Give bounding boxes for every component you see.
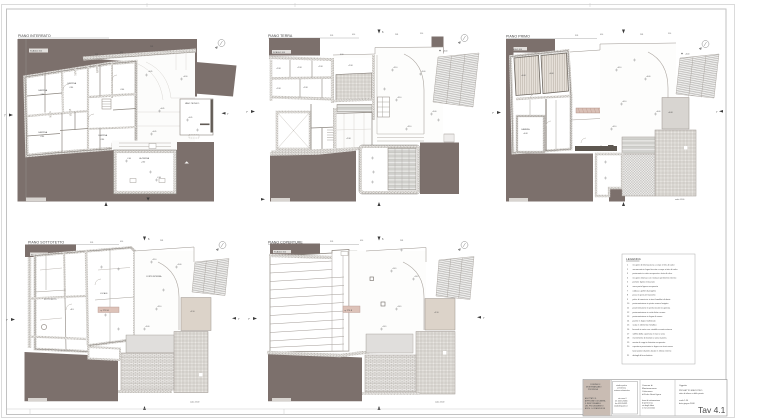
svg-text:scala 1:100: scala 1:100 bbox=[435, 402, 444, 404]
svg-text:dettagli di ferro battuto: dettagli di ferro battuto bbox=[633, 354, 654, 357]
svg-text:scala in elemento metallico: scala in elemento metallico bbox=[633, 324, 658, 327]
svg-text:7: 7 bbox=[227, 112, 229, 116]
svg-text:7': 7' bbox=[6, 318, 8, 322]
svg-text:+2.98: +2.98 bbox=[297, 67, 302, 69]
svg-text:4.10: 4.10 bbox=[120, 52, 123, 54]
svg-text:ARCH. G. FRANCESCHI: ARCH. G. FRANCESCHI bbox=[585, 407, 606, 410]
svg-text:7: 7 bbox=[238, 317, 240, 321]
svg-text:7': 7' bbox=[248, 317, 250, 321]
svg-text:LOCALE: LOCALE bbox=[100, 292, 108, 295]
svg-text:scala 1:100: scala 1:100 bbox=[190, 402, 199, 404]
svg-text:+9.40: +9.40 bbox=[177, 264, 181, 266]
svg-text:Tav 4.1: Tav 4.1 bbox=[698, 405, 726, 415]
svg-text:+6.40: +6.40 bbox=[685, 54, 689, 56]
svg-text:CORTE INTERNA: CORTE INTERNA bbox=[146, 275, 162, 278]
svg-text:+3.40: +3.40 bbox=[432, 111, 436, 113]
svg-text:bussola in vetro con cristallo: bussola in vetro con cristallo curvato e… bbox=[633, 328, 673, 331]
svg-text:+10.9: +10.9 bbox=[414, 276, 418, 278]
svg-text:pavimentazione in legno di rov: pavimentazione in legno di rovere bbox=[633, 315, 664, 318]
svg-text:+0.45: +0.45 bbox=[152, 131, 156, 133]
svg-text:pavimentazione in pietra seren: pavimentazione in pietra serena levigata bbox=[633, 302, 670, 305]
svg-text:+2.98: +2.98 bbox=[346, 138, 351, 140]
svg-text:lavorazione di pietra locale i: lavorazione di pietra locale in rilievo … bbox=[633, 350, 673, 353]
svg-text:+6.08: +6.08 bbox=[521, 75, 526, 77]
svg-text:5.10: 5.10 bbox=[668, 33, 671, 35]
svg-text:+6.10: +6.10 bbox=[617, 67, 621, 69]
svg-text:caldaia a pellet di progetto: caldaia a pellet di progetto bbox=[633, 289, 657, 292]
svg-text:rivestimento di mattoni a vist: rivestimento di mattoni a vista in pietr… bbox=[633, 337, 668, 340]
svg-text:+9.10: +9.10 bbox=[152, 259, 156, 261]
svg-text:SCALA 1:100: SCALA 1:100 bbox=[273, 51, 286, 54]
svg-text:posa in opera di massetto: posa in opera di massetto bbox=[633, 294, 657, 297]
svg-text:PIANO PRIMO: PIANO PRIMO bbox=[506, 34, 530, 38]
svg-text:vano porta ligneo recuperato: vano porta ligneo recuperato bbox=[633, 285, 659, 288]
svg-text:studio@quattro.it: studio@quattro.it bbox=[614, 405, 628, 408]
svg-text:+6.08: +6.08 bbox=[549, 73, 554, 75]
svg-text:+0.45: +0.45 bbox=[148, 71, 152, 73]
svg-text:CANTINA: CANTINA bbox=[98, 134, 108, 137]
svg-text:4.10: 4.10 bbox=[360, 240, 363, 242]
svg-text:Oggetto: Oggetto bbox=[679, 384, 688, 387]
svg-text:7': 7' bbox=[492, 111, 494, 115]
svg-text:7: 7 bbox=[483, 316, 485, 320]
svg-text:+6.08: +6.08 bbox=[523, 133, 528, 135]
svg-text:+3.40: +3.40 bbox=[443, 51, 447, 53]
svg-text:Montemarzano: Montemarzano bbox=[642, 387, 657, 390]
svg-text:3.20: 3.20 bbox=[95, 54, 98, 56]
svg-text:2.85: 2.85 bbox=[640, 34, 643, 36]
svg-text:+9.10: +9.10 bbox=[157, 306, 161, 308]
svg-text:CAMERA: CAMERA bbox=[521, 128, 530, 131]
svg-text:scala 1:100: scala 1:100 bbox=[675, 199, 684, 201]
svg-text:+9.10: +9.10 bbox=[190, 311, 195, 313]
svg-text:2.85: 2.85 bbox=[395, 34, 398, 36]
svg-text:copertura provvisoria in legno: copertura provvisoria in legno con travi… bbox=[633, 345, 674, 348]
svg-text:restauro urbanistica: restauro urbanistica bbox=[614, 389, 630, 392]
svg-text:4.10: 4.10 bbox=[600, 34, 603, 36]
svg-text:PIANO INTERRATO: PIANO INTERRATO bbox=[18, 34, 51, 38]
svg-text:+2.98: +2.98 bbox=[276, 88, 281, 90]
svg-text:SOTTOTETTO: SOTTOTETTO bbox=[44, 299, 57, 301]
svg-text:+2.98: +2.98 bbox=[318, 66, 323, 68]
svg-text:2.85: 2.85 bbox=[400, 240, 403, 242]
svg-text:q. 274.8: q. 274.8 bbox=[345, 310, 353, 312]
svg-text:-2.80: -2.80 bbox=[40, 94, 44, 96]
svg-text:CANTINA: CANTINA bbox=[38, 89, 48, 92]
svg-text:e monumentale: e monumentale bbox=[642, 407, 655, 410]
svg-text:LA TERRA: LA TERRA bbox=[139, 157, 150, 160]
svg-text:CANTINA: CANTINA bbox=[67, 82, 77, 85]
svg-text:parete in legno multistrato: parete in legno multistrato bbox=[633, 319, 657, 322]
svg-text:+0.45: +0.45 bbox=[160, 108, 164, 110]
svg-text:3.20: 3.20 bbox=[90, 242, 93, 244]
svg-text:recupero di intonacatura a cor: recupero di intonacatura a corpo e tinta… bbox=[633, 264, 676, 267]
svg-text:+3.10: +3.10 bbox=[393, 67, 397, 69]
svg-text:pavimentazione in pietra local: pavimentazione in pietra locale recupera… bbox=[633, 307, 671, 310]
svg-text:-2.60: -2.60 bbox=[127, 158, 131, 160]
svg-text:-2.60: -2.60 bbox=[141, 162, 145, 164]
svg-text:+0.45: +0.45 bbox=[188, 117, 192, 119]
svg-text:+10.9: +10.9 bbox=[382, 326, 386, 328]
svg-text:+10.9: +10.9 bbox=[392, 268, 396, 270]
svg-text:Calenzano: Calenzano bbox=[642, 391, 653, 393]
svg-text:+0.90: +0.90 bbox=[183, 76, 187, 78]
svg-text:data giugno 2008: data giugno 2008 bbox=[679, 402, 695, 405]
svg-text:pavimentazione in cotto fatto: pavimentazione in cotto fatto a mano bbox=[633, 311, 667, 314]
svg-text:+9.40: +9.40 bbox=[145, 326, 149, 328]
svg-text:q. 271.50: q. 271.50 bbox=[101, 310, 110, 312]
svg-text:6: 6 bbox=[382, 237, 384, 241]
svg-text:3.20: 3.20 bbox=[575, 35, 578, 37]
svg-text:manto di coppi in laterizio re: manto di coppi in laterizio recuperato bbox=[633, 341, 667, 344]
svg-text:-2.80: -2.80 bbox=[40, 136, 44, 138]
svg-text:di Forlo Giani figura: di Forlo Giani figura bbox=[642, 393, 662, 396]
svg-text:+8.9: +8.9 bbox=[70, 309, 74, 311]
svg-text:pavimento in cotto recuperato: pavimento in cotto recuperato e tinta di… bbox=[633, 272, 674, 275]
svg-text:+6.08: +6.08 bbox=[668, 112, 673, 114]
svg-text:soffitto della copertura in tr: soffitto della copertura in travi a vist… bbox=[633, 332, 666, 335]
svg-text:4.10: 4.10 bbox=[120, 241, 123, 243]
svg-text:+2.98: +2.98 bbox=[303, 87, 308, 89]
svg-text:0.00: 0.00 bbox=[340, 54, 343, 56]
svg-text:7': 7' bbox=[246, 110, 248, 114]
svg-text:portone ligneo restaurato: portone ligneo restaurato bbox=[633, 281, 656, 284]
svg-text:4.10: 4.10 bbox=[352, 34, 355, 36]
svg-text:+2.98: +2.98 bbox=[276, 68, 281, 70]
svg-text:Comune di: Comune di bbox=[642, 385, 653, 387]
svg-text:+3.10: +3.10 bbox=[397, 97, 401, 99]
svg-text:PIANO TERRA: PIANO TERRA bbox=[268, 34, 293, 38]
svg-text:+10.9: +10.9 bbox=[397, 306, 401, 308]
svg-text:PIANO SOTTOTETTO: PIANO SOTTOTETTO bbox=[28, 240, 64, 244]
svg-text:+6.10: +6.10 bbox=[622, 101, 626, 103]
svg-text:+6.40: +6.40 bbox=[646, 76, 650, 78]
svg-text:PROGETTO ESECUTIVO: PROGETTO ESECUTIVO bbox=[679, 390, 703, 392]
svg-text:stato di rilievo e delle piant: stato di rilievo e delle piante bbox=[679, 392, 705, 395]
svg-text:7: 7 bbox=[716, 110, 718, 114]
svg-text:recupero intonaci con restauro: recupero intonaci con restauro pertinent… bbox=[633, 276, 678, 279]
svg-text:+2.98: +2.98 bbox=[348, 65, 353, 67]
svg-text:6: 6 bbox=[148, 237, 150, 241]
svg-text:5.10: 5.10 bbox=[420, 33, 423, 35]
svg-text:SCALA 1:100: SCALA 1:100 bbox=[274, 251, 287, 254]
svg-text:+6.40: +6.40 bbox=[656, 111, 660, 113]
svg-text:palco di canniccio in travi la: palco di canniccio in travi lamellari di… bbox=[633, 298, 672, 301]
svg-text:CANTINA: CANTINA bbox=[38, 131, 48, 134]
svg-text:3.20: 3.20 bbox=[330, 35, 333, 37]
svg-text:2.85: 2.85 bbox=[150, 46, 153, 48]
svg-text:scala 1:50: scala 1:50 bbox=[679, 400, 689, 402]
svg-text:VANO TECNICO: VANO TECNICO bbox=[185, 102, 200, 105]
svg-text:6: 6 bbox=[382, 30, 384, 34]
svg-text:-2.80: -2.80 bbox=[100, 139, 104, 141]
svg-text:-2.60: -2.60 bbox=[157, 177, 161, 179]
svg-text:serramento in legno laccato a: serramento in legno laccato a corpo e ti… bbox=[633, 268, 679, 271]
svg-text:+9.10: +9.10 bbox=[434, 312, 439, 314]
svg-text:-2.80: -2.80 bbox=[69, 87, 73, 89]
svg-text:+6.10: +6.10 bbox=[612, 126, 616, 128]
svg-text:2.85: 2.85 bbox=[160, 240, 163, 242]
svg-text:PROVINCIA: PROVINCIA bbox=[588, 388, 599, 391]
svg-text:+3.40: +3.40 bbox=[421, 71, 425, 73]
svg-text:LEGENDA: LEGENDA bbox=[626, 257, 642, 261]
svg-text:SCALA 1:100: SCALA 1:100 bbox=[30, 50, 43, 53]
svg-text:-2.60: -2.60 bbox=[120, 89, 124, 91]
svg-text:3.20: 3.20 bbox=[330, 241, 333, 243]
svg-text:+3.10: +3.10 bbox=[407, 126, 411, 128]
